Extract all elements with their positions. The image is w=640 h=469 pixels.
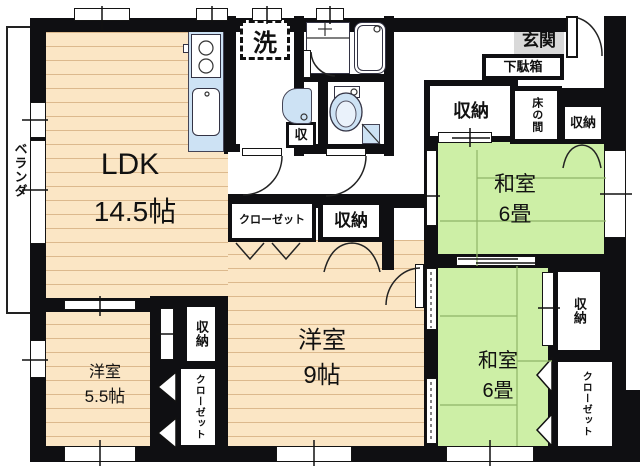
sliding-door	[456, 256, 536, 266]
closet-label: クローゼット	[580, 371, 591, 437]
window	[604, 150, 626, 238]
wall	[618, 390, 640, 462]
gas-stove-icon	[191, 34, 221, 78]
vanity-icon	[306, 22, 350, 74]
closet-label: クローゼット	[193, 374, 204, 440]
sliding-door	[438, 132, 492, 143]
japanese-lower-name: 和室	[446, 344, 550, 373]
floorplan: ベランダ 玄関 下駄箱 収納 収納 床の間 クローゼット 収納	[0, 0, 640, 469]
sliding-door	[542, 272, 554, 346]
laundry-box: 洗	[240, 20, 290, 60]
storage-label: 収納	[194, 320, 208, 348]
washbasin-icon	[282, 88, 312, 124]
counter-handle	[183, 44, 189, 53]
wall	[224, 16, 236, 154]
closet-label: クローゼット	[239, 215, 305, 227]
door-leaf	[242, 148, 282, 156]
storage-box-west9-top: 収納	[318, 200, 384, 242]
storage-label: 収納	[572, 297, 586, 325]
western9-size: 9帖	[252, 355, 392, 390]
storage-label: 収納	[570, 116, 596, 130]
toilet-tank	[334, 86, 360, 98]
toilet-icon	[330, 93, 362, 131]
door-leaf	[326, 148, 366, 156]
shoe-cabinet-box: 下駄箱	[482, 54, 564, 80]
closet-box-west9-top: クローゼット	[228, 200, 316, 242]
window	[74, 8, 130, 21]
western55-name: 洋室	[50, 358, 160, 382]
door-arc	[326, 156, 366, 196]
door-arc	[243, 156, 282, 195]
wall	[318, 82, 328, 154]
veranda-label: ベランダ	[11, 142, 30, 198]
door-leaf	[415, 264, 424, 308]
tokonoma-label: 床の間	[530, 97, 542, 133]
japanese-lower-size: 6畳	[446, 374, 550, 403]
closet-box-lower-right: クローゼット	[552, 356, 618, 452]
kitchen-sink-icon	[192, 88, 220, 136]
western55-size: 5.5帖	[50, 382, 160, 407]
window	[30, 140, 46, 244]
bathtub-inner	[357, 25, 383, 71]
tokonoma-box: 床の間	[510, 86, 562, 144]
window	[30, 340, 46, 378]
storage-box-lower-right: 収納	[552, 266, 606, 356]
storage-label: 収納	[453, 102, 489, 121]
storage-label: 収納	[334, 212, 368, 230]
sliding-door	[426, 150, 437, 226]
storage-box-mid: 収納	[182, 302, 220, 366]
storage-short-label: 収	[294, 128, 307, 142]
sliding-door	[426, 378, 437, 444]
window	[446, 446, 534, 462]
sliding-door	[426, 268, 437, 330]
closet-box-mid: クローゼット	[176, 364, 220, 450]
door-leaf	[303, 50, 311, 78]
storage-box-small: 収	[286, 122, 316, 148]
shoe-cabinet-label: 下駄箱	[503, 60, 542, 74]
western9-name: 洋室	[252, 320, 392, 355]
wall	[302, 74, 394, 82]
sliding-door	[160, 308, 174, 360]
window	[64, 300, 136, 310]
laundry-label: 洗	[253, 23, 277, 58]
japanese-upper-size: 6畳	[455, 198, 575, 228]
ldk-size: 14.5帖	[50, 190, 220, 230]
window	[316, 8, 344, 21]
entrance-door-leaf	[566, 16, 578, 58]
window	[276, 446, 352, 462]
opening	[228, 152, 240, 194]
window	[196, 8, 228, 21]
toilet-corner-sink-icon	[362, 124, 380, 144]
ldk-name: LDK	[50, 148, 210, 182]
japanese-upper-name: 和室	[455, 168, 575, 198]
window	[30, 102, 46, 138]
storage-box-upper-right: 収納	[560, 102, 606, 144]
entrance-door-arc	[578, 18, 602, 56]
window	[252, 8, 282, 21]
window	[64, 446, 136, 462]
